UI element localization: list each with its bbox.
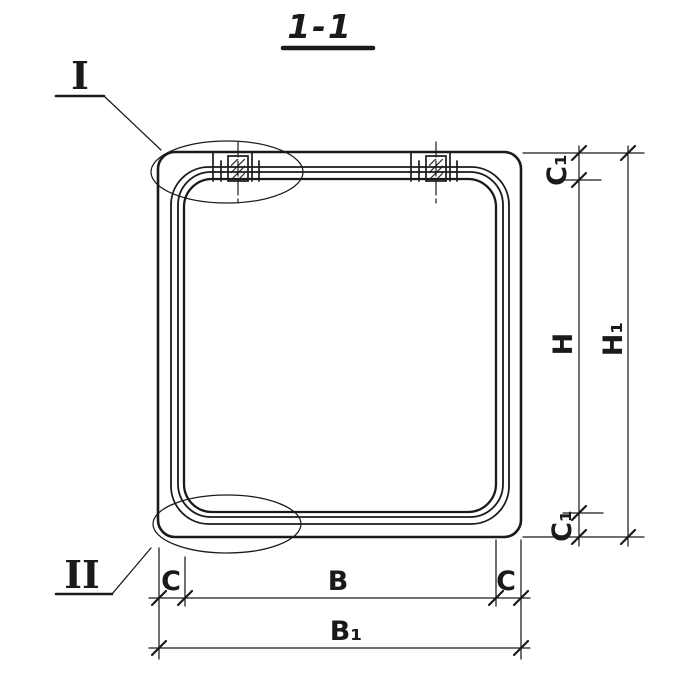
inner-contour-inner xyxy=(184,179,496,512)
view-title: 1-1 xyxy=(287,7,353,46)
dim-label-c-right: C xyxy=(496,566,516,597)
callout-II-label: II xyxy=(64,552,100,597)
inner-contour-middle xyxy=(178,172,503,517)
outer-contour xyxy=(158,152,521,537)
right-dimensions: C₁ H C₁ H₁ xyxy=(523,146,644,546)
dim-label-c1-bottom: C₁ xyxy=(547,510,578,542)
dim-label-c1-top: C₁ xyxy=(542,154,573,186)
callout-I-label: I xyxy=(71,53,89,98)
bottom-dimensions: C B C B₁ xyxy=(149,540,530,659)
dim-label-h: H xyxy=(548,333,579,356)
inner-contour-outer xyxy=(171,167,509,524)
dim-label-b: B xyxy=(328,566,349,597)
dim-label-b1: B₁ xyxy=(330,616,362,647)
callout-II-leader xyxy=(112,548,151,594)
callout-I-leader xyxy=(104,96,161,150)
dim-label-c-left: C xyxy=(161,566,181,597)
drawing-sheet: 1-1 I II xyxy=(0,0,700,700)
dim-label-h1: H₁ xyxy=(598,322,629,356)
section-view-1-1: 1-1 I II xyxy=(0,0,700,700)
